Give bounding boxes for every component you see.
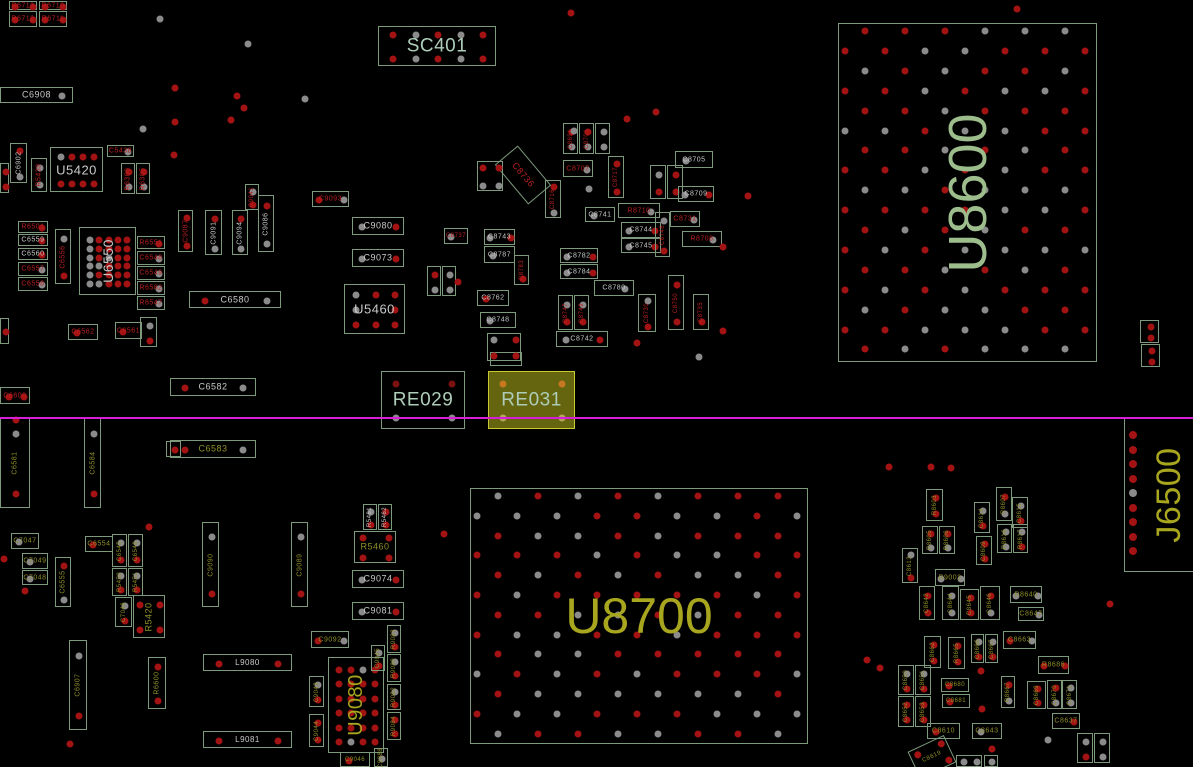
- pad: [352, 292, 359, 299]
- via[interactable]: [568, 10, 575, 17]
- bga-ball: [735, 572, 742, 579]
- component-R6713[interactable]: R6713: [9, 1, 37, 10]
- component-C8762[interactable]: C8762: [477, 290, 509, 306]
- component-R8606[interactable]: R8606: [939, 526, 955, 554]
- ref-label: C6556: [60, 245, 67, 268]
- bga-ball: [982, 147, 989, 154]
- pad: [579, 301, 586, 308]
- via[interactable]: [1, 556, 8, 563]
- component-C8701[interactable]: C8701: [579, 123, 594, 154]
- bga-ball: [882, 286, 889, 293]
- pad: [105, 272, 112, 279]
- pad: [76, 713, 83, 720]
- component-C6907[interactable]: C6907: [69, 640, 87, 730]
- pad: [1018, 543, 1025, 550]
- component-R8607[interactable]: R8607: [996, 487, 1012, 521]
- component-U5460[interactable]: U5460: [344, 284, 405, 334]
- ref-label: C9073: [363, 254, 392, 263]
- via[interactable]: [877, 665, 884, 672]
- component[interactable]: [477, 161, 503, 191]
- component-C6548[interactable]: C6548: [137, 251, 165, 265]
- component-C9074[interactable]: C9074: [352, 570, 404, 588]
- bga-ball: [754, 631, 761, 638]
- component-U6550[interactable]: U6550: [79, 227, 136, 295]
- component[interactable]: [1077, 733, 1093, 763]
- bga-ball: [714, 631, 721, 638]
- component-R5461[interactable]: R5461: [363, 504, 377, 530]
- component-R5439[interactable]: R5439: [31, 158, 47, 192]
- component-C8681[interactable]: C8681: [942, 694, 970, 708]
- component-C8730[interactable]: C8730: [638, 294, 656, 332]
- via[interactable]: [864, 657, 871, 664]
- component-C9041[interactable]: C9041: [245, 184, 259, 210]
- pad: [368, 521, 375, 528]
- component-C8663[interactable]: C8663: [1003, 631, 1036, 649]
- component-C9046[interactable]: C9046: [340, 752, 370, 767]
- component-C6555[interactable]: C6555: [55, 557, 71, 607]
- pad: [660, 247, 667, 254]
- via[interactable]: [989, 746, 996, 753]
- via[interactable]: [1107, 601, 1114, 608]
- via[interactable]: [241, 105, 248, 112]
- component-U8700[interactable]: U8700: [470, 488, 808, 744]
- component-C8644[interactable]: C8644: [942, 586, 959, 620]
- bga-ball: [554, 671, 561, 678]
- component-C9090[interactable]: C9090: [202, 522, 219, 607]
- component-C8650[interactable]: C8650: [898, 665, 914, 695]
- component[interactable]: [166, 441, 181, 457]
- component-C6556[interactable]: C6556: [55, 229, 71, 284]
- component-R8605[interactable]: R8605: [922, 526, 938, 554]
- pad: [674, 282, 681, 289]
- component-C8646[interactable]: C8646: [980, 586, 1000, 620]
- component-C6584[interactable]: C6584: [84, 418, 101, 508]
- component-R5450[interactable]: R5450: [112, 568, 127, 596]
- component-R8686[interactable]: R8686: [1038, 656, 1069, 674]
- component-C9080[interactable]: C9080: [352, 217, 404, 235]
- component-C6554[interactable]: C6554: [85, 536, 113, 552]
- pad: [625, 243, 632, 250]
- bga-ball: [695, 691, 702, 698]
- component-C9086[interactable]: C9086: [258, 195, 274, 252]
- component-R9083[interactable]: R9083: [387, 625, 401, 653]
- component-L9080[interactable]: L9080: [203, 654, 292, 671]
- component-R6305[interactable]: R6305: [136, 163, 150, 194]
- component-C8652[interactable]: C8652: [898, 696, 914, 727]
- component-R6710[interactable]: R6710: [39, 1, 67, 10]
- component[interactable]: [487, 333, 521, 361]
- component-C6559[interactable]: C6559: [18, 234, 48, 246]
- component-C8736[interactable]: C8736: [495, 145, 551, 204]
- component-U8600[interactable]: U8600: [838, 23, 1097, 362]
- component-C6580[interactable]: C6580: [189, 291, 281, 308]
- pad: [11, 3, 18, 10]
- pad: [614, 161, 621, 168]
- bga-ball: [514, 710, 521, 717]
- component-C8619[interactable]: C8619: [908, 735, 957, 767]
- component[interactable]: [427, 266, 441, 296]
- component-RE031[interactable]: RE031: [488, 371, 575, 429]
- via[interactable]: [146, 524, 153, 531]
- bga-ball: [594, 592, 601, 599]
- component-C9087[interactable]: C9087: [178, 210, 193, 252]
- component-C6583[interactable]: C6583: [170, 440, 256, 458]
- component-R6712[interactable]: R6712: [9, 11, 37, 27]
- pad: [96, 237, 103, 244]
- component-R6551[interactable]: R6551: [137, 236, 165, 249]
- via[interactable]: [455, 279, 462, 286]
- component-C8642[interactable]: C8642: [919, 586, 935, 620]
- component-C8645[interactable]: C8645: [960, 589, 979, 620]
- via[interactable]: [157, 16, 164, 23]
- via[interactable]: [172, 119, 179, 126]
- component-C8669[interactable]: C8669: [1027, 681, 1046, 709]
- pad: [114, 281, 121, 288]
- via[interactable]: [886, 464, 893, 471]
- pad: [114, 237, 121, 244]
- component-R6582[interactable]: R6582: [137, 281, 165, 295]
- via[interactable]: [624, 116, 631, 123]
- component[interactable]: [140, 317, 157, 347]
- component-R8603[interactable]: R8603: [926, 489, 943, 521]
- component-C7049[interactable]: C7049: [22, 553, 48, 569]
- pad: [26, 559, 33, 566]
- pad: [699, 319, 706, 326]
- component-R5451[interactable]: R5451: [128, 568, 143, 596]
- component-SC401[interactable]: SC401: [378, 26, 496, 66]
- component-J6500[interactable]: J6500: [1124, 417, 1193, 572]
- pad: [980, 507, 987, 514]
- component-C7048[interactable]: C7048: [22, 570, 48, 585]
- pad: [96, 281, 103, 288]
- component[interactable]: [1140, 320, 1159, 343]
- component-C8666[interactable]: C8666: [971, 634, 984, 663]
- component-C8750[interactable]: C8750: [668, 275, 684, 330]
- pad: [386, 554, 393, 561]
- component-C8614[interactable]: C8614: [974, 502, 990, 533]
- component-C6549[interactable]: C6549: [137, 266, 165, 280]
- pad: [383, 521, 390, 528]
- component-C8709[interactable]: C8709: [678, 186, 714, 202]
- component[interactable]: [1094, 733, 1110, 763]
- component-C8707[interactable]: C8707: [563, 160, 593, 177]
- bga-ball: [962, 167, 969, 174]
- via[interactable]: [172, 85, 179, 92]
- bga-ball: [575, 651, 582, 658]
- pad: [123, 272, 130, 279]
- pad: [37, 181, 44, 188]
- component-C9088[interactable]: C9088: [374, 748, 388, 767]
- component-L9081[interactable]: L9081: [203, 731, 292, 748]
- bga-ball: [962, 127, 969, 134]
- component-C8609[interactable]: C8609: [976, 536, 992, 565]
- component-C9073[interactable]: C9073: [352, 249, 404, 267]
- via[interactable]: [653, 109, 660, 116]
- pad: [371, 695, 378, 702]
- via[interactable]: [1045, 737, 1052, 744]
- ref-label: C6555: [60, 570, 67, 593]
- component-R6600[interactable]: R6600: [148, 657, 166, 709]
- via[interactable]: [140, 126, 147, 133]
- bga-ball: [474, 710, 481, 717]
- component-C6902[interactable]: C6902: [10, 143, 27, 183]
- bga-ball: [1082, 207, 1089, 214]
- pad: [157, 627, 164, 634]
- pad: [690, 217, 697, 224]
- pad: [5, 393, 12, 400]
- component-R5420[interactable]: R5420: [133, 595, 165, 638]
- bga-ball: [474, 592, 481, 599]
- component-C6560[interactable]: C6560: [18, 248, 48, 260]
- component-C6562[interactable]: C6562: [68, 324, 98, 340]
- pad: [584, 128, 591, 135]
- component-C5438[interactable]: C5438: [107, 145, 134, 157]
- via[interactable]: [67, 741, 74, 748]
- pad: [432, 271, 439, 278]
- component-C8743[interactable]: C8743: [484, 229, 515, 245]
- via[interactable]: [571, 128, 578, 135]
- component-C9091[interactable]: C9091: [205, 210, 222, 255]
- bga-ball: [1022, 28, 1029, 35]
- component-U9080[interactable]: U9080: [328, 657, 384, 753]
- ref-label: C8742: [570, 336, 593, 343]
- via[interactable]: [228, 117, 235, 124]
- bga-ball: [1022, 227, 1029, 234]
- component-C9089[interactable]: C9089: [291, 522, 308, 607]
- via[interactable]: [928, 464, 935, 471]
- pad: [275, 660, 282, 667]
- via[interactable]: [979, 706, 986, 713]
- component-C9081[interactable]: C9081: [352, 602, 404, 620]
- pad: [183, 243, 190, 250]
- via[interactable]: [234, 93, 241, 100]
- component-C8780[interactable]: C8780: [594, 280, 634, 296]
- pad: [392, 673, 399, 680]
- bga-ball: [634, 552, 641, 559]
- via[interactable]: [745, 193, 752, 200]
- component-C8783[interactable]: C8783: [514, 255, 529, 285]
- component-C6557[interactable]: C6557: [18, 262, 48, 276]
- component-C8667[interactable]: C8667: [985, 634, 998, 663]
- pad: [136, 627, 143, 634]
- component-R9084[interactable]: R9084: [387, 712, 401, 740]
- via[interactable]: [245, 41, 252, 48]
- bga-ball: [1042, 207, 1049, 214]
- bga-ball: [902, 227, 909, 234]
- bga-ball: [615, 611, 622, 618]
- component-R6711[interactable]: R6711: [39, 11, 67, 27]
- component-C8613[interactable]: C8613: [902, 548, 918, 583]
- pad: [91, 154, 98, 161]
- component-C8717[interactable]: C8717: [608, 156, 624, 198]
- bga-ball: [962, 47, 969, 54]
- pad: [114, 254, 121, 261]
- component-C7047[interactable]: C7047: [11, 533, 39, 549]
- bga-ball: [922, 167, 929, 174]
- bga-ball: [882, 87, 889, 94]
- ref-label: R6600: [154, 671, 161, 694]
- via[interactable]: [720, 244, 727, 251]
- pad: [359, 667, 366, 674]
- pad: [371, 724, 378, 731]
- component-R5462[interactable]: R5462: [378, 504, 392, 530]
- via[interactable]: [696, 354, 703, 361]
- pad: [448, 234, 455, 241]
- bga-ball: [754, 592, 761, 599]
- pad: [348, 724, 355, 731]
- bga-ball: [794, 512, 801, 519]
- pad: [487, 318, 494, 325]
- component-R9082[interactable]: R9082: [387, 684, 401, 710]
- component-R6501[interactable]: R6501: [18, 221, 48, 233]
- component-C6546[interactable]: C6546: [128, 534, 143, 567]
- bga-ball: [695, 493, 702, 500]
- component-C8643[interactable]: C8643: [972, 723, 1002, 739]
- component-C8737[interactable]: C8737: [444, 228, 468, 244]
- bga-ball: [634, 592, 641, 599]
- component-C8741[interactable]: C8741: [585, 207, 615, 222]
- component-C8662[interactable]: C8662: [924, 636, 941, 668]
- component-R9089[interactable]: R9089: [387, 654, 401, 682]
- component-R8667[interactable]: R8667: [1001, 676, 1015, 708]
- bga-ball: [902, 147, 909, 154]
- via[interactable]: [978, 668, 985, 675]
- component-C6582[interactable]: C6582: [170, 378, 256, 396]
- bga-ball: [1042, 47, 1049, 54]
- bga-ball: [1062, 147, 1069, 154]
- pad: [87, 237, 94, 244]
- component-RE029[interactable]: RE029: [381, 371, 465, 429]
- via[interactable]: [441, 531, 448, 538]
- component-C9045[interactable]: C9045: [371, 645, 385, 671]
- via[interactable]: [171, 152, 178, 159]
- pad: [1034, 700, 1041, 707]
- component-C8782[interactable]: C8782: [560, 248, 598, 263]
- component-R5460[interactable]: R5460: [354, 531, 396, 563]
- pad: [393, 224, 400, 231]
- component-C8637[interactable]: C8637: [1052, 713, 1080, 729]
- bga-ball: [575, 730, 582, 737]
- component[interactable]: [650, 165, 666, 199]
- bga-ball: [962, 87, 969, 94]
- via[interactable]: [1014, 6, 1021, 13]
- component[interactable]: [1141, 344, 1160, 367]
- via[interactable]: [302, 96, 309, 103]
- bga-ball: [735, 611, 742, 618]
- via[interactable]: [22, 588, 29, 595]
- component-C6908[interactable]: C6908: [0, 87, 73, 103]
- component-C8746[interactable]: C8746: [655, 212, 670, 257]
- pad: [123, 281, 130, 288]
- bga-ball: [1062, 306, 1069, 313]
- pad: [392, 659, 399, 666]
- component-R8616[interactable]: R8616: [997, 524, 1012, 553]
- component-R8640[interactable]: R8640: [1010, 586, 1042, 603]
- component-C8787[interactable]: C8787: [484, 246, 515, 263]
- bga-ball: [674, 710, 681, 717]
- pad: [16, 539, 23, 546]
- pad: [275, 737, 282, 744]
- component-C6561[interactable]: C6561: [115, 322, 142, 339]
- pad: [41, 3, 48, 10]
- pad: [119, 328, 126, 335]
- pad: [68, 181, 75, 188]
- component-C8735[interactable]: C8735: [693, 294, 709, 330]
- component-R8710[interactable]: R8710: [618, 203, 660, 218]
- component[interactable]: [956, 755, 982, 767]
- pad: [250, 188, 257, 195]
- component-C9043[interactable]: C9043: [309, 676, 324, 707]
- component-C8670[interactable]: C8670: [1047, 680, 1062, 709]
- pad: [379, 755, 386, 762]
- component-U5420[interactable]: U5420: [50, 147, 103, 192]
- bga-ball: [922, 87, 929, 94]
- component-R9002[interactable]: R9002: [935, 569, 965, 586]
- via[interactable]: [948, 465, 955, 472]
- component-C8784[interactable]: C8784: [560, 264, 598, 279]
- component-R6547[interactable]: R6547: [137, 296, 165, 310]
- via[interactable]: [634, 340, 641, 347]
- component-C8651[interactable]: C8651: [915, 665, 931, 695]
- component-C8671[interactable]: C8671: [1062, 680, 1077, 709]
- component-C7046[interactable]: C7046: [115, 597, 132, 627]
- component-C8747[interactable]: C8747: [558, 295, 573, 330]
- component-C8749[interactable]: C8749: [574, 295, 589, 330]
- component-C8731[interactable]: C8731: [670, 211, 700, 227]
- component-C6581[interactable]: C6581: [0, 418, 30, 508]
- ref-label: C8746: [660, 224, 666, 244]
- component-C9093[interactable]: C9093: [312, 191, 349, 207]
- component-C8647[interactable]: C8647: [1018, 607, 1044, 621]
- pad: [16, 147, 23, 154]
- bga-ball: [902, 28, 909, 35]
- bga-ball: [754, 710, 761, 717]
- bga-ball: [554, 512, 561, 519]
- component-R8665[interactable]: R8665: [948, 637, 965, 669]
- component-R6306[interactable]: R6306: [121, 163, 135, 194]
- component-C6558[interactable]: C6558: [18, 277, 48, 291]
- pad: [38, 225, 45, 232]
- pad: [16, 174, 23, 181]
- pad: [238, 215, 245, 222]
- component[interactable]: [0, 163, 9, 193]
- component-R8617[interactable]: R8617: [1013, 524, 1028, 553]
- component[interactable]: [0, 318, 9, 344]
- pad: [947, 699, 954, 706]
- via[interactable]: [720, 328, 727, 335]
- component-C8716[interactable]: C8716: [545, 180, 561, 218]
- pad: [564, 269, 571, 276]
- pad: [973, 759, 980, 766]
- bga-ball: [1042, 286, 1049, 293]
- component[interactable]: [984, 755, 998, 767]
- component[interactable]: [595, 123, 610, 154]
- component-C8742[interactable]: C8742: [556, 331, 608, 347]
- pad: [239, 385, 246, 392]
- pad: [340, 197, 347, 204]
- component-C9094[interactable]: C9094: [232, 210, 248, 255]
- ref-label: C6908: [22, 91, 51, 100]
- component-C9092[interactable]: C9092: [311, 631, 349, 648]
- component-R8708[interactable]: R8708: [682, 231, 722, 247]
- component-C8748[interactable]: C8748: [480, 312, 516, 328]
- component-C8680[interactable]: C8680: [941, 678, 969, 692]
- component-C6600[interactable]: C6600: [0, 387, 30, 404]
- bga-ball: [594, 710, 601, 717]
- component-C9044[interactable]: C9044: [309, 714, 324, 747]
- component-C6545[interactable]: C6545: [112, 534, 127, 567]
- via[interactable]: [586, 186, 593, 193]
